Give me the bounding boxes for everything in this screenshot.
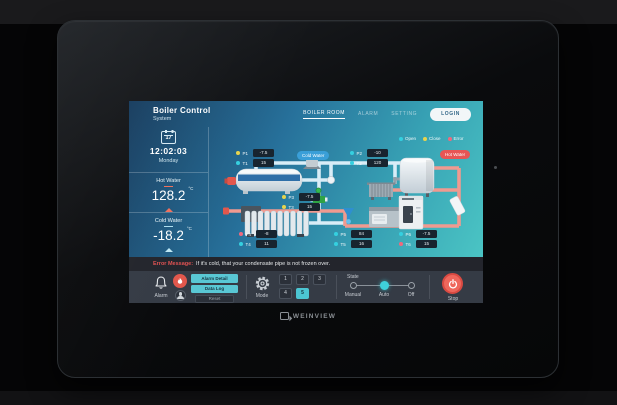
reset-button[interactable]: Reset xyxy=(195,295,234,303)
hot-water-accent xyxy=(164,186,173,188)
divider xyxy=(336,275,337,299)
stop-button[interactable] xyxy=(442,273,463,294)
hot-water-panel: Hot Water 128.2°C xyxy=(129,172,208,212)
brand-name: WEINVIEW xyxy=(293,313,336,320)
error-message-bar: Error Message: If it's cold, that your c… xyxy=(129,257,483,271)
mode-button-5-selected[interactable]: 5 xyxy=(296,288,309,299)
alarm-bell-icon xyxy=(153,275,169,290)
divider xyxy=(429,275,430,299)
state-section-label: State xyxy=(347,274,359,280)
backdrop-bottom xyxy=(0,391,617,405)
alarm-section-label: Alarm xyxy=(143,293,179,299)
sensor-row: P2-10 xyxy=(350,148,388,158)
app-brand: Boiler Control System xyxy=(153,106,211,122)
hot-pipe-cap xyxy=(223,208,229,215)
sensor-value: 11 xyxy=(256,240,277,248)
pipe-joint xyxy=(327,176,334,183)
sensor-row: T315 xyxy=(282,202,320,212)
mode-button-1[interactable]: 1 xyxy=(279,274,292,285)
brand-logo: WEINVIEW xyxy=(58,312,558,320)
open-dot-icon xyxy=(399,137,403,141)
mode-section-label: Mode xyxy=(248,293,276,299)
status-dot xyxy=(399,242,403,246)
horizontal-tank xyxy=(225,169,303,194)
cold-water-panel: Cold Water -18.2°C xyxy=(129,212,208,261)
sensor-value: 84 xyxy=(351,230,372,238)
cold-trend-up-icon xyxy=(165,248,173,252)
sensor-row: T516 xyxy=(334,239,372,249)
sensor-group-p6-t6: P6-7.5 T615 xyxy=(399,229,437,249)
mode-number-pad: 1 2 3 4 5 xyxy=(279,274,326,299)
state-option-auto[interactable]: Auto xyxy=(372,292,396,298)
hot-water-label: Hot Water xyxy=(129,173,208,184)
weinview-logo-icon xyxy=(280,312,289,320)
sensor-group-p4-t4: P4-8 T411 xyxy=(239,229,277,249)
cold-water-value: -18.2°C xyxy=(153,228,184,243)
sensor-row: T411 xyxy=(239,239,277,249)
photo-background: Boiler Control System BOILER ROOM ALARM … xyxy=(0,0,617,405)
clock-time: 12:02:03 xyxy=(129,146,208,156)
state-knob-off[interactable] xyxy=(408,282,415,289)
alarm-buttons: Alarm Detail Data Log Reset xyxy=(191,274,238,303)
pump-machine xyxy=(369,207,399,227)
clock-weekday: Monday xyxy=(129,158,208,164)
sensor-value: -7.5 xyxy=(299,193,320,201)
page-title: Boiler Control xyxy=(153,106,211,115)
sensor-value: 15 xyxy=(416,240,437,248)
sensor-row: T115 xyxy=(236,158,274,168)
control-bar: Alarm Alarm Detail Data Log Reset xyxy=(129,271,483,303)
user-icon xyxy=(179,292,183,296)
status-dot xyxy=(239,242,243,246)
tab-alarm[interactable]: ALARM xyxy=(358,111,378,117)
user-button[interactable] xyxy=(175,290,186,301)
state-knob-manual[interactable] xyxy=(350,282,357,289)
sensor-value: 15 xyxy=(253,159,274,167)
tab-setting[interactable]: SETTING xyxy=(391,111,417,117)
power-icon xyxy=(448,279,458,289)
tab-boiler-room[interactable]: BOILER ROOM xyxy=(303,110,345,119)
cold-water-label: Cold Water xyxy=(129,213,208,224)
sensor-group-p2-t2: P2-10 T2120 xyxy=(350,148,388,168)
error-text: If it's cold, that your condensate pipe … xyxy=(196,261,330,267)
cold-water-tag: Cold Water xyxy=(297,151,329,160)
datetime-panel: 17 12:02:03 Monday xyxy=(129,131,208,172)
sensor-group-p5-t5: P584 T516 xyxy=(334,229,372,249)
sensor-row: P4-8 xyxy=(239,229,277,239)
status-dot xyxy=(334,232,338,236)
sensor-group-p3-t3: P3-7.5 T315 xyxy=(282,192,320,212)
calendar-icon: 17 xyxy=(161,131,176,144)
alarm-indicator-button[interactable] xyxy=(173,274,187,288)
page-subtitle: System xyxy=(153,116,211,122)
sensor-value: 15 xyxy=(299,203,320,211)
hot-water-tag: Hot Water xyxy=(440,150,470,159)
data-log-button[interactable]: Data Log xyxy=(191,285,238,294)
legend-error: Error xyxy=(448,136,464,141)
sensor-value: -8 xyxy=(256,230,277,238)
status-dot xyxy=(282,195,286,199)
status-dot xyxy=(236,161,240,165)
vertical-tank xyxy=(400,158,434,197)
sensor-group-p1-t1: P1-7.5 T115 xyxy=(236,148,274,168)
sensor-row: P1-7.5 xyxy=(236,148,274,158)
hmi-device: Boiler Control System BOILER ROOM ALARM … xyxy=(57,20,559,378)
mode-button-2[interactable]: 2 xyxy=(296,274,309,285)
status-dot xyxy=(282,205,286,209)
close-dot-icon xyxy=(423,137,427,141)
legend-open: Open xyxy=(399,136,416,141)
error-label: Error Message: xyxy=(153,261,193,267)
boiler-machine xyxy=(399,196,423,229)
gear-icon xyxy=(254,275,271,292)
bezel-led xyxy=(494,166,497,169)
status-legend: Open Close Error xyxy=(399,136,464,141)
sensor-value: -10 xyxy=(367,149,388,157)
divider xyxy=(246,275,247,299)
sensor-row: P584 xyxy=(334,229,372,239)
hmi-screen: Boiler Control System BOILER ROOM ALARM … xyxy=(129,101,483,303)
status-dot xyxy=(350,161,354,165)
status-dot xyxy=(350,151,354,155)
sidebar: 17 12:02:03 Monday Hot Water 128.2°C Col… xyxy=(129,127,209,257)
status-dot xyxy=(399,232,403,236)
sensor-value: 16 xyxy=(351,240,372,248)
status-dot xyxy=(334,242,338,246)
heat-exchanger xyxy=(367,183,395,201)
state-knob-auto-selected[interactable] xyxy=(380,281,389,290)
mode-button-3[interactable]: 3 xyxy=(313,274,326,285)
status-dot xyxy=(236,151,240,155)
boiler-diagram: Open Close Error Cold Water Hot Water P1… xyxy=(209,127,483,257)
cold-water-unit: °C xyxy=(187,226,192,231)
pipe-elbow xyxy=(449,196,465,216)
flame-icon xyxy=(176,277,184,286)
sensor-row: T2120 xyxy=(350,158,388,168)
state-option-manual[interactable]: Manual xyxy=(338,292,368,298)
top-nav: BOILER ROOM ALARM SETTING LOGIN xyxy=(303,101,471,127)
login-button[interactable]: LOGIN xyxy=(430,108,471,121)
hot-water-value: 128.2°C xyxy=(152,188,186,203)
sensor-row: P3-7.5 xyxy=(282,192,320,202)
cold-water-accent xyxy=(164,226,173,228)
stop-button-label: Stop xyxy=(439,296,467,302)
legend-close: Close xyxy=(423,136,441,141)
sensor-value: -7.5 xyxy=(253,149,274,157)
header-bar: Boiler Control System BOILER ROOM ALARM … xyxy=(129,101,483,127)
status-dot xyxy=(239,232,243,236)
sensor-value: -7.5 xyxy=(416,230,437,238)
hot-water-unit: °C xyxy=(188,186,193,191)
state-option-off[interactable]: Off xyxy=(401,292,421,298)
error-dot-icon xyxy=(448,137,452,141)
sensor-value: 120 xyxy=(367,159,388,167)
sensor-row: T615 xyxy=(399,239,437,249)
sensor-row: P6-7.5 xyxy=(399,229,437,239)
mode-button-4[interactable]: 4 xyxy=(279,288,292,299)
alarm-detail-button[interactable]: Alarm Detail xyxy=(191,274,238,283)
